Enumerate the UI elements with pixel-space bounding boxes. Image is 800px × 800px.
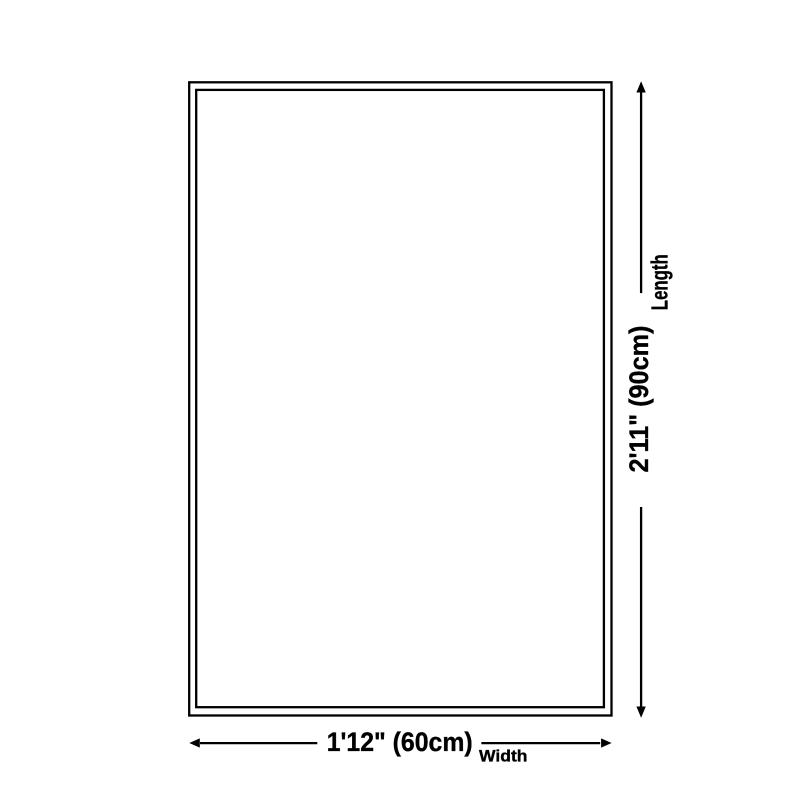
svg-text:Width: Width (479, 747, 528, 766)
svg-text:1'12" (60cm): 1'12" (60cm) (327, 727, 473, 757)
svg-text:Length: Length (647, 254, 673, 310)
svg-text:2'11" (90cm): 2'11" (90cm) (624, 326, 654, 473)
